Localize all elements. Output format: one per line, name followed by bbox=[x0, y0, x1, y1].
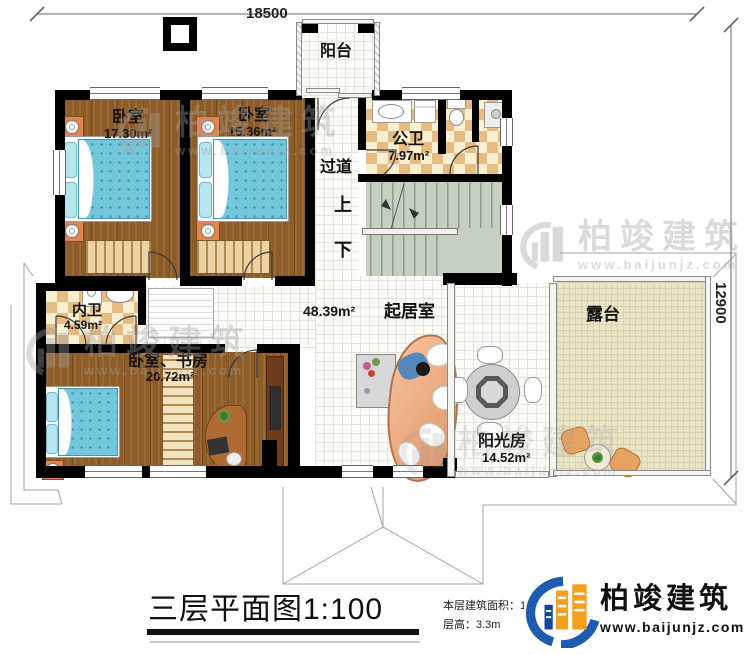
computer-monitor-icon bbox=[207, 436, 229, 455]
wall bbox=[138, 283, 146, 325]
plant-icon bbox=[592, 452, 603, 463]
wall bbox=[288, 344, 300, 476]
window bbox=[53, 150, 66, 195]
sunroom-glass-wall bbox=[447, 283, 455, 477]
brand-name: 柏竣建筑 bbox=[600, 582, 745, 617]
wall bbox=[305, 98, 315, 278]
dining-chair bbox=[524, 377, 542, 403]
window bbox=[85, 465, 142, 478]
pillow bbox=[46, 392, 58, 422]
brand-logo-icon bbox=[524, 574, 600, 648]
stair-handrail bbox=[362, 228, 458, 235]
lamp-icon bbox=[65, 224, 79, 238]
floor-plan-canvas: 柏竣建筑 www.baijunjz.com 柏竣建筑 www.baijunjz.… bbox=[0, 0, 750, 655]
flower-icon bbox=[363, 362, 371, 370]
wall bbox=[180, 98, 190, 278]
wall bbox=[358, 98, 366, 150]
window bbox=[402, 87, 460, 100]
bath-cabinet bbox=[414, 100, 436, 123]
lamp-icon bbox=[201, 224, 215, 238]
terrace-parapet bbox=[553, 470, 711, 476]
room-label-bedroom-study: 卧室、书房 bbox=[128, 354, 208, 370]
window bbox=[202, 87, 268, 100]
dimension-right: 12900 bbox=[712, 282, 729, 324]
bookshelf-panel bbox=[269, 386, 281, 430]
stair-steps-lower bbox=[370, 234, 442, 276]
wall bbox=[262, 440, 277, 468]
sunroom-glass-wall bbox=[455, 471, 549, 478]
balcony-railing bbox=[302, 19, 374, 24]
wall bbox=[36, 344, 225, 353]
floor-area-label: 本层建筑面积： bbox=[443, 600, 520, 612]
window bbox=[342, 465, 373, 478]
chimney-flue bbox=[171, 25, 189, 43]
watermark-name: 柏竣建筑 bbox=[578, 220, 746, 254]
wall bbox=[358, 174, 512, 182]
window bbox=[500, 118, 513, 146]
room-area-bedroom2: 15.36m² bbox=[228, 125, 276, 138]
wall bbox=[36, 344, 46, 476]
wall bbox=[472, 98, 479, 142]
window bbox=[500, 205, 513, 235]
room-label-inner-bath: 内卫 bbox=[72, 303, 102, 318]
wardrobe bbox=[196, 240, 270, 274]
desk-chair bbox=[226, 452, 242, 466]
title-underline-thin bbox=[150, 641, 420, 643]
room-area-inner-bath: 4.59m² bbox=[64, 319, 102, 331]
stairs-down-label: 下 bbox=[334, 241, 352, 259]
plant-icon bbox=[218, 410, 230, 422]
room-area-bedroom1: 17.30m² bbox=[104, 127, 152, 140]
window bbox=[150, 465, 206, 478]
nightstand bbox=[196, 116, 220, 138]
stair-steps-upper bbox=[370, 182, 500, 228]
hall-cabinet bbox=[148, 288, 214, 338]
floor-height-label: 层高： bbox=[443, 619, 476, 631]
sink-basin bbox=[378, 104, 404, 119]
title-underline bbox=[147, 629, 419, 635]
stairs-up-label: 上 bbox=[334, 196, 352, 214]
room-label-sunroom: 阳光房 bbox=[478, 434, 526, 450]
room-area-living: 48.39m² bbox=[303, 304, 355, 318]
wall bbox=[36, 283, 46, 352]
room-label-terrace: 露台 bbox=[586, 306, 620, 323]
room-label-bedroom2: 卧室 bbox=[238, 108, 270, 124]
window bbox=[393, 465, 423, 478]
toilet-tank bbox=[447, 99, 466, 109]
room-label-public-bath: 公卫 bbox=[392, 132, 424, 148]
dining-chair bbox=[477, 346, 503, 364]
brand-logo: 柏竣建筑 www.baijunjz.com bbox=[524, 574, 745, 648]
room-area-sunroom: 14.52m² bbox=[482, 451, 530, 464]
room-area-bedroom-study: 20.72m² bbox=[146, 370, 194, 383]
brand-url: www.baijunjz.com bbox=[600, 619, 745, 635]
room-label-balcony: 阳台 bbox=[320, 44, 352, 60]
wall bbox=[438, 98, 446, 154]
wall bbox=[36, 283, 146, 291]
pillow bbox=[199, 142, 212, 178]
room-label-corridor: 过道 bbox=[320, 160, 352, 176]
wardrobe bbox=[85, 240, 152, 274]
sunroom-glass-wall bbox=[549, 283, 557, 477]
balcony-railing bbox=[374, 22, 380, 96]
watermark-logo-icon bbox=[518, 220, 570, 272]
watermark-url: www.baijunjz.com bbox=[578, 257, 746, 272]
flower-icon bbox=[368, 370, 375, 377]
wall bbox=[275, 276, 315, 286]
toilet-bowl bbox=[449, 109, 464, 126]
nightstand bbox=[196, 220, 220, 242]
person-head bbox=[416, 362, 430, 376]
floor-height-value: 3.3m bbox=[476, 619, 500, 631]
wall bbox=[180, 276, 242, 286]
lamp-icon bbox=[65, 120, 79, 134]
balcony-railing bbox=[296, 22, 302, 96]
terrace-parapet bbox=[705, 276, 711, 476]
wall bbox=[142, 466, 150, 478]
watermark: 柏竣建筑 www.baijunjz.com bbox=[518, 220, 746, 272]
table-dot bbox=[364, 388, 370, 394]
flower-icon bbox=[372, 358, 380, 366]
sliding-door bbox=[338, 93, 372, 98]
page-title: 三层平面图1:100 bbox=[148, 584, 383, 628]
room-area-public-bath: 7.97m² bbox=[388, 149, 429, 162]
sliding-door bbox=[306, 88, 340, 93]
terrace-parapet bbox=[553, 276, 711, 282]
pillow bbox=[46, 424, 58, 454]
room-label-bedroom1: 卧室 bbox=[112, 110, 144, 126]
window bbox=[90, 87, 160, 100]
pillow bbox=[199, 182, 212, 218]
wall bbox=[373, 466, 393, 478]
wall bbox=[36, 466, 85, 478]
lamp-icon bbox=[201, 120, 215, 134]
dimension-top: 18500 bbox=[246, 5, 288, 22]
room-label-living: 起居室 bbox=[384, 303, 435, 320]
